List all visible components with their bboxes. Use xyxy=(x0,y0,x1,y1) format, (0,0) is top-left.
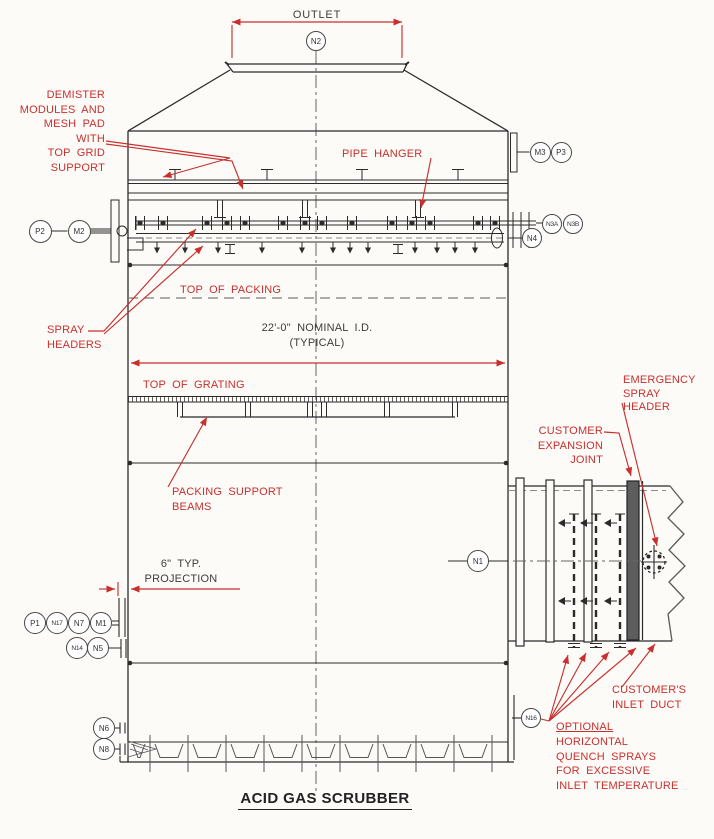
emergency-spray-header-symbol xyxy=(641,545,667,579)
emergency-spray-header-label: EMERGENCY SPRAY HEADER xyxy=(623,374,696,415)
nozzle-tag-N6: N6 xyxy=(93,717,115,739)
nozzle-tag-N17: N17 xyxy=(46,612,68,634)
drawing-linework xyxy=(0,0,714,839)
nozzle-tag-N8: N8 xyxy=(93,738,115,760)
spray-headers-label: SPRAY HEADERS xyxy=(47,323,102,352)
nozzle-tag-P1: P1 xyxy=(24,612,46,634)
vessel-outline xyxy=(128,62,508,762)
bottom-support xyxy=(120,695,514,762)
nozzle-tag-M1: M1 xyxy=(90,612,112,634)
nozzle-tag-N2: N2 xyxy=(306,31,326,51)
nominal-id-dimension-text: 22'-0" NOMINAL I.D. xyxy=(217,321,417,336)
nozzle-tag-N16: N16 xyxy=(521,708,541,728)
optional-quench-title: OPTIONAL xyxy=(556,720,613,735)
break-line xyxy=(668,486,685,641)
nozzle-tag-M2: M2 xyxy=(68,220,91,243)
nozzle-tag-N4: N4 xyxy=(522,228,542,248)
red-annotations xyxy=(88,22,657,721)
demister-label: DEMISTER MODULES AND MESH PAD WITH TOP G… xyxy=(4,88,105,175)
top-of-grating-label: TOP OF GRATING xyxy=(143,378,245,393)
nozzle-tag-M3: M3 xyxy=(530,142,551,163)
nozzle-tag-N3B: N3B xyxy=(563,214,583,234)
nozzle-tag-N7: N7 xyxy=(68,612,90,634)
grating-and-beams xyxy=(128,397,508,418)
nozzle-tag-P3: P3 xyxy=(551,142,572,163)
projection-dimension-text: 6" TYP. PROJECTION xyxy=(131,557,231,586)
acid-gas-scrubber-drawing: OUTLET DEMISTER MODULES AND MESH PAD WIT… xyxy=(0,0,714,839)
nozzle-tag-P2: P2 xyxy=(29,220,52,243)
customer-expansion-joint-label: CUSTOMER EXPANSION JOINT xyxy=(503,424,603,468)
wall-nozzles xyxy=(52,231,522,755)
top-of-packing-label: TOP OF PACKING xyxy=(180,283,281,298)
typical-note: (TYPICAL) xyxy=(217,336,417,351)
nozzle-tag-N1: N1 xyxy=(467,550,489,572)
packing-support-beams-label: PACKING SUPPORT BEAMS xyxy=(172,485,283,514)
drawing-title: ACID GAS SCRUBBER xyxy=(225,790,425,810)
optional-quench-label: HORIZONTAL QUENCH SPRAYS FOR EXCESSIVE I… xyxy=(556,735,679,793)
nozzle-tag-N14: N14 xyxy=(66,637,88,659)
customers-inlet-duct-label: CUSTOMER'S INLET DUCT xyxy=(612,683,686,712)
generated-details xyxy=(133,170,626,773)
nozzle-tag-N3A: N3A xyxy=(542,214,562,234)
pipe-hanger-label: PIPE HANGER xyxy=(342,147,422,162)
nozzle-tag-N5: N5 xyxy=(87,637,109,659)
outlet-label: OUTLET xyxy=(247,8,387,23)
